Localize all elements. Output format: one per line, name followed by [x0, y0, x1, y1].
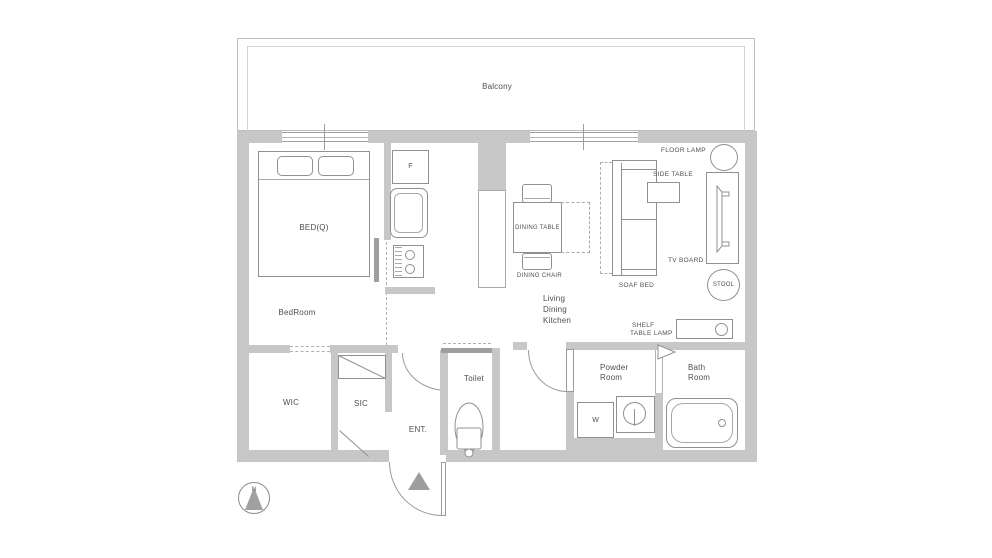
wall-segment: [440, 350, 448, 455]
entrance-label: ENT.: [398, 425, 438, 435]
basin-tap-line: [634, 409, 635, 426]
bath-room-label-line: Room: [688, 373, 710, 383]
dining-chair: [522, 184, 552, 203]
wall-segment: [368, 131, 530, 143]
powder-room-label-line: Powder: [600, 363, 628, 373]
tv-board: [706, 172, 739, 264]
wall-segment: [330, 345, 398, 353]
table-lamp: [715, 323, 728, 336]
dining-chair-label: DINING CHAIR: [513, 272, 566, 280]
pillow: [277, 156, 313, 176]
table-lamp-label: TABLE LAMP: [630, 330, 673, 338]
wall-segment: [492, 348, 500, 455]
compass-north-icon: N: [235, 480, 273, 518]
wall-segment: [513, 342, 527, 350]
washing-machine: W: [577, 402, 614, 438]
tv-icon: [707, 173, 740, 265]
powder-room-label: Powder Room: [600, 363, 628, 383]
powder-door-leaf: [566, 349, 574, 392]
dining-chair: [522, 253, 552, 270]
washer-label: W: [592, 417, 599, 424]
sofa-arm-line: [621, 269, 656, 270]
wall-segment: [237, 131, 249, 462]
window: [530, 132, 638, 142]
toilet-fixture: [451, 401, 487, 459]
sic-shelf-lower: [339, 430, 369, 457]
chair-seat-line: [524, 198, 550, 199]
chair-seat-line: [524, 257, 550, 258]
wall-segment: [566, 438, 663, 452]
bathtub-drain: [718, 419, 726, 427]
pillow: [318, 156, 354, 176]
balcony-label: Balcony: [437, 82, 557, 92]
wall-segment: [385, 287, 435, 294]
toilet-label: Toilet: [454, 374, 494, 384]
sofa-arm-line: [621, 169, 656, 170]
dining-table-label: DINING TABLE: [511, 224, 564, 232]
ldk-label-line: Dining: [543, 304, 571, 315]
fridge-label: F: [408, 163, 413, 171]
floor-lamp: [710, 144, 738, 171]
sofa-mid-line: [621, 219, 656, 220]
bed-label: BED(Q): [268, 223, 360, 233]
powder-door-swing: [528, 350, 567, 392]
stool: STOOL: [707, 269, 740, 301]
window: [282, 132, 368, 142]
ldk-label-line: Kitchen: [543, 315, 571, 326]
sliding-door-dashed: [290, 346, 330, 352]
sofa-bed-fold-dashed: [600, 162, 612, 274]
bathtub: [666, 398, 738, 448]
toilet-sliding-door-rail: [441, 348, 492, 353]
wall-segment: [745, 131, 757, 462]
wall-segment: [566, 392, 574, 440]
side-table: [647, 182, 680, 203]
window-mullion: [282, 137, 368, 138]
door-jamb: [374, 238, 379, 282]
window-mullion: [530, 137, 638, 138]
bedroom-label: BedRoom: [266, 308, 328, 318]
sofa-bed-label: SOAF BED: [608, 282, 665, 290]
ldk-label: Living Dining Kitchen: [543, 293, 571, 326]
wall-segment: [249, 345, 290, 353]
bath-room-label-line: Bath: [688, 363, 710, 373]
window-tick: [324, 124, 325, 150]
powder-room-label-line: Room: [600, 373, 628, 383]
stove: [393, 245, 424, 278]
tv-board-label: TV BOARD: [668, 257, 704, 265]
stove-grill: [395, 247, 402, 276]
bed-head-line: [259, 179, 369, 180]
kitchen-counter: [478, 190, 506, 288]
powder-basin: [616, 396, 655, 433]
sic-label: SIC: [346, 399, 376, 409]
kitchen-sink-basin: [394, 193, 423, 233]
kitchen-sink: [390, 188, 428, 238]
wic-label: WIC: [272, 398, 310, 408]
wall-segment: [331, 353, 338, 452]
bath-room-label: Bath Room: [688, 363, 710, 383]
sic-shelf-upper: [338, 355, 386, 379]
floor-lamp-label: FLOOR LAMP: [661, 147, 706, 155]
wall-segment: [478, 143, 506, 190]
wall-segment: [638, 131, 757, 143]
burner: [405, 264, 415, 274]
sofa-bed: [612, 160, 657, 276]
bath-door-flag-icon: [657, 344, 677, 360]
entrance-door-leaf: [441, 462, 446, 516]
window-tick: [583, 124, 584, 150]
fridge: F: [392, 150, 429, 184]
ldk-label-line: Living: [543, 293, 571, 304]
floor-plan: Balcony BED(Q) BedRoom F Living: [0, 0, 992, 558]
wall-segment: [385, 353, 392, 412]
side-table-label: SIDE TABLE: [653, 171, 693, 179]
shelf-label: SHELF: [632, 322, 654, 330]
entrance-arrow-icon: [408, 472, 430, 490]
bed: [258, 151, 370, 277]
stool-label: STOOL: [713, 282, 734, 288]
sliding-door-dashed: [443, 343, 491, 344]
dining-table-extension-dashed: [561, 202, 590, 253]
burner: [405, 250, 415, 260]
compass-north-label: N: [252, 486, 257, 493]
